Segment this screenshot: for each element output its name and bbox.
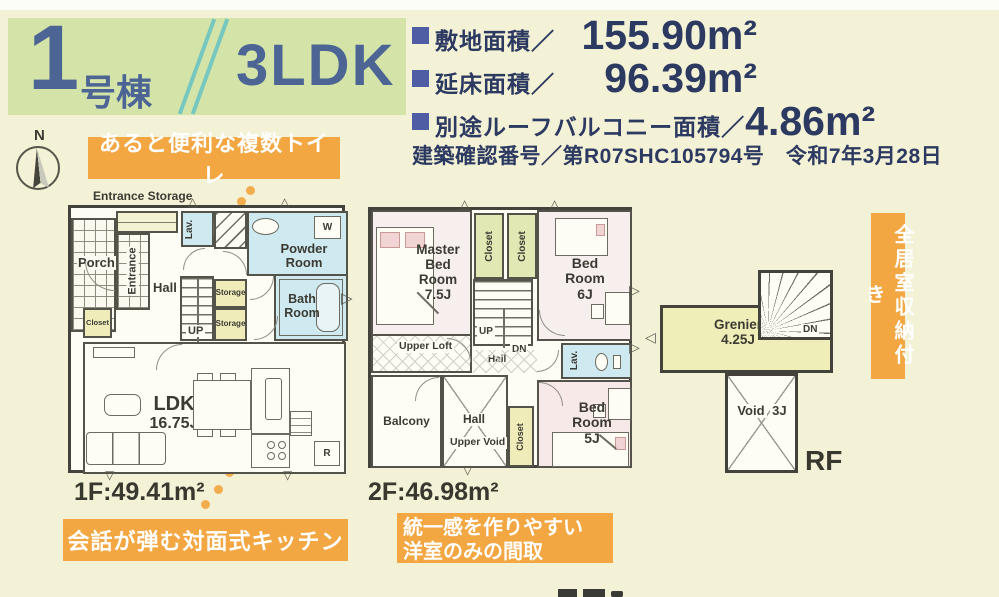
up-label: UP — [477, 326, 495, 337]
room-lav-2f: Lav. — [561, 343, 632, 379]
toilet-tank-icon — [613, 355, 621, 369]
spec-roof-balcony-area: 別途ルーフバルコニー面積／ 4.86m² — [412, 98, 875, 145]
tv-board — [93, 347, 135, 358]
opening-marker-icon: ▽ — [283, 469, 292, 481]
floor2-area-label: 2F:46.98m² — [368, 479, 499, 507]
washing-machine: W — [314, 216, 341, 239]
refrigerator: R — [314, 441, 340, 466]
spec-site-value: 155.90m² — [569, 12, 757, 59]
kitchen-counter — [251, 368, 290, 468]
cutoff-text-fragment — [611, 591, 623, 597]
spec-site-label: 敷地面積／ — [435, 22, 569, 56]
opening-marker-icon: ▽ — [463, 464, 472, 476]
coffee-table — [104, 394, 141, 416]
opening-marker-icon: △ — [280, 196, 289, 208]
door-arc — [183, 248, 205, 270]
stove-burner-icon — [278, 441, 286, 449]
dn-label: DN — [801, 324, 819, 335]
room-storage-1: Storage — [214, 279, 247, 308]
spec-roof-value: 4.86m² — [745, 98, 875, 145]
floorplan-2f: Master Bed Room 7.5J Closet Closet Bed R… — [368, 207, 632, 468]
banner-western-line1: 統一感を作りやすい — [403, 516, 613, 540]
bed — [555, 218, 608, 256]
opening-marker-icon: △ — [188, 196, 197, 208]
banner-all-rooms-storage: 全居室収納付き — [871, 213, 905, 379]
opening-marker-icon: △ — [550, 198, 559, 210]
banner-multiple-toilets: あると便利な複数トイレ — [88, 137, 340, 179]
lav-label: Lav. — [184, 219, 195, 238]
hall-hatch-area — [473, 350, 537, 373]
pillow-icon — [380, 232, 400, 248]
chair — [591, 304, 604, 319]
spec-site-area: 敷地面積／ 155.90m² — [412, 12, 757, 59]
sink-icon — [252, 218, 279, 235]
opening-marker-icon: ▽ — [105, 469, 114, 481]
opening-marker-icon: △ — [460, 198, 469, 210]
rf-floor-label: RF — [805, 446, 842, 477]
compass-north-label: N — [34, 128, 45, 145]
upper-void-label: Upper Void — [448, 437, 507, 449]
entrance-storage-label: Entrance Storage — [93, 190, 192, 203]
hall-label: Hall — [461, 413, 487, 426]
plan-type: 3LDK — [236, 32, 395, 99]
pillow-icon — [596, 224, 605, 236]
flyer-page: 1 号棟 3LDK 敷地面積／ 155.90m² 延床面積／ 96.39m² 別… — [0, 0, 999, 597]
door-arc — [223, 251, 247, 275]
bath-room-label: Bath Room — [280, 293, 324, 321]
opening-marker-icon: ◁ — [645, 330, 656, 344]
bedroom-5j-label: Bed Room 5J — [563, 400, 621, 446]
banner-kitchen: 会話が弾む対面式キッチン — [63, 519, 348, 561]
room-closet-1f: Closet — [83, 308, 112, 338]
stairs-rf — [758, 270, 833, 340]
door-arc — [537, 350, 559, 372]
stove-burner-icon — [267, 441, 275, 449]
door-arc — [250, 276, 274, 300]
stairs-upper-1f — [214, 211, 247, 249]
building-number-suffix: 号棟 — [80, 64, 152, 116]
spec-floor-value: 96.39m² — [569, 55, 757, 102]
sofa — [86, 432, 166, 465]
room-storage-2: Storage — [214, 308, 247, 341]
room-lav-1f: Lav. — [181, 211, 214, 247]
up-label: UP — [186, 325, 205, 337]
lav-label: Lav. — [569, 351, 580, 370]
dining-table — [193, 380, 251, 430]
top-white-strip — [0, 0, 999, 10]
trail-dot — [214, 485, 223, 494]
opening-marker-icon: ▷ — [629, 283, 640, 297]
room-entrance: Entrance — [116, 233, 150, 310]
hall-label: Hall — [153, 281, 177, 295]
title-box: 1 号棟 3LDK — [8, 18, 406, 115]
spec-roof-label: 別途ルーフバルコニー面積／ — [435, 108, 745, 142]
room-closet-2f-3: Closet — [508, 406, 534, 467]
compass: N — [12, 130, 64, 196]
floorplan-1f: Porch Entrance Hall Lav. Powder Room W B… — [68, 205, 345, 473]
entrance-storage-shelf — [116, 211, 178, 233]
square-bullet-icon — [412, 113, 429, 130]
void-label: Void 3J — [733, 404, 791, 418]
spec-floor-area: 延床面積／ 96.39m² — [412, 55, 757, 102]
banner-western-rooms: 統一感を作りやすい 洋室のみの間取 — [397, 513, 613, 563]
upper-loft-label: Upper Loft — [397, 341, 454, 353]
stove-burner-icon — [278, 452, 286, 460]
floor1-area-label: 1F:49.41m² — [74, 479, 205, 507]
room-closet-2f-1: Closet — [474, 213, 504, 279]
opening-marker-icon: ▷ — [629, 340, 640, 354]
square-bullet-icon — [412, 70, 429, 87]
counter-divider — [252, 433, 291, 435]
kitchen-sink-icon — [265, 378, 282, 420]
cutoff-text-fragment — [558, 589, 577, 597]
room-closet-2f-2: Closet — [507, 213, 537, 279]
powder-room-label: Powder Room — [269, 242, 339, 271]
opening-marker-icon: ▷ — [341, 291, 353, 306]
kitchen-cupboard — [290, 411, 312, 436]
toilet-icon — [595, 353, 608, 371]
building-confirmation-number: 建築確認番号／第R07SHC105794号 令和7年3月28日 — [412, 140, 942, 170]
cutoff-text-fragment — [583, 589, 605, 597]
building-number: 1 — [28, 6, 79, 111]
room-void — [725, 373, 798, 473]
spec-floor-label: 延床面積／ — [435, 65, 569, 99]
stair-rail — [503, 309, 505, 348]
stove-burner-icon — [267, 452, 275, 460]
trail-dot — [246, 186, 255, 195]
square-bullet-icon — [412, 27, 429, 44]
bedroom-6j-label: Bed Room 6J — [555, 256, 615, 302]
entrance-label: Entrance — [127, 247, 139, 296]
banner-western-line2: 洋室のみの間取 — [403, 540, 613, 564]
master-bedroom-label: Master Bed Room 7.5J — [405, 243, 471, 302]
floorplan-rf: Grenier 4.25J DN Void 3J — [655, 258, 845, 476]
